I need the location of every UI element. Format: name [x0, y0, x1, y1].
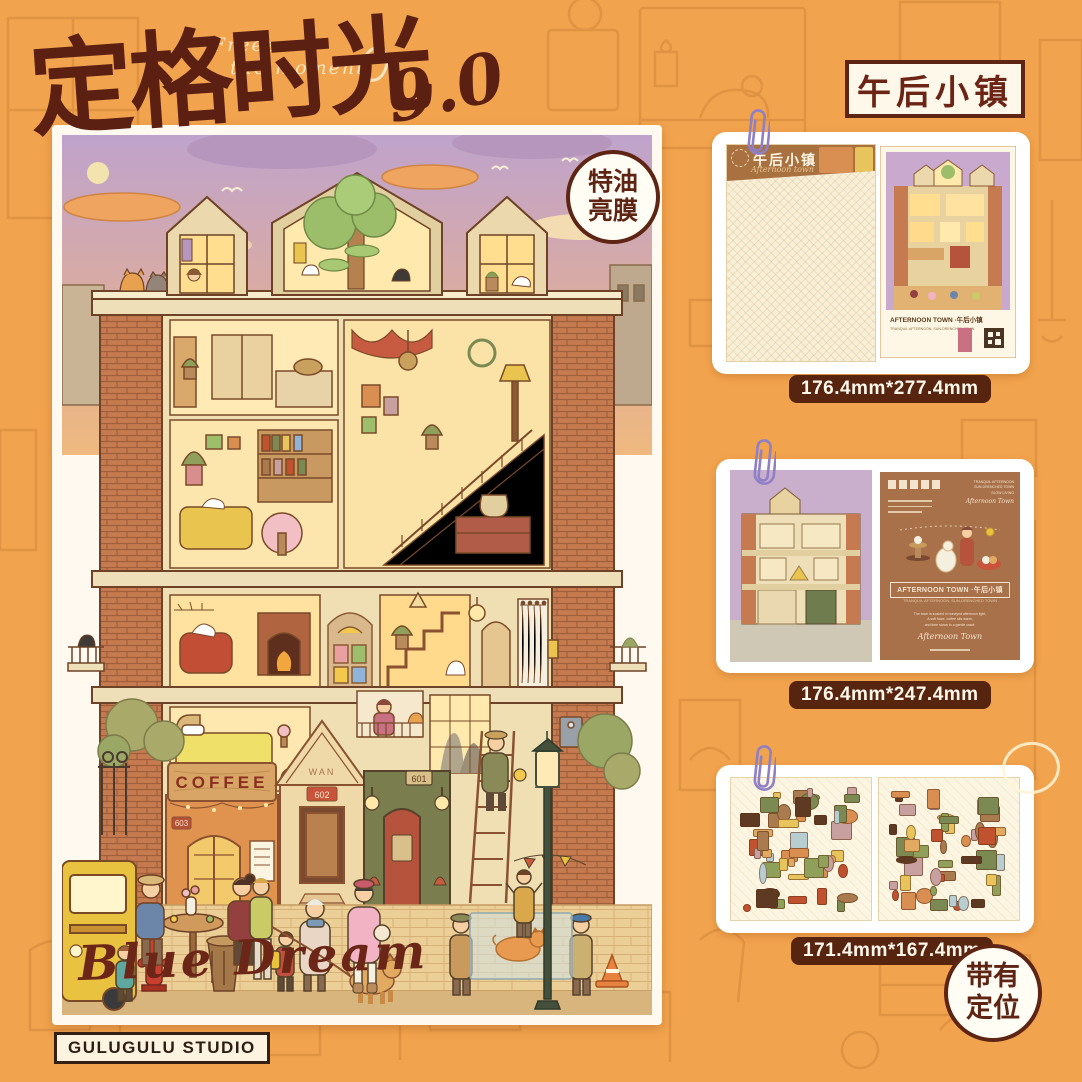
backing-sheet-script: Afternoon town	[751, 165, 814, 174]
main-poster: COFFEE 603 WAN 602	[52, 125, 662, 1025]
sticker-piece	[789, 848, 809, 859]
size-label-1: 176.4mm*277.4mm	[789, 375, 991, 403]
floor-living-room	[170, 595, 320, 687]
film-finish-badge: 特油 亮膜	[566, 150, 660, 244]
sticker-piece	[927, 789, 940, 809]
moon	[87, 162, 109, 184]
sticker-piece	[958, 896, 970, 911]
sticker-piece	[795, 797, 811, 817]
sticker-piece	[760, 797, 779, 813]
poster-illustration: COFFEE 603 WAN 602	[62, 135, 652, 1015]
sticker-sheet-left	[730, 777, 872, 921]
coffee-sign-text: COFFEE	[176, 773, 269, 792]
header-art	[855, 147, 873, 173]
sticker-piece	[838, 864, 847, 877]
sticker-piece	[938, 860, 953, 868]
sticker-piece	[930, 868, 942, 886]
sticky-backing-sheet: 午后小镇 Afternoon town	[726, 144, 876, 362]
sticker-piece	[837, 893, 857, 903]
sticker-piece	[961, 835, 970, 847]
product-card-backing-poster: 午后小镇 Afternoon town AFTERNOON TOWN ·午后小镇…	[712, 132, 1030, 374]
corner-text: TRANQUIL AFTERNOON SUN-DRENCHED TOWN SLO…	[966, 480, 1014, 506]
sticker-piece	[996, 854, 1005, 871]
sticker-piece	[814, 815, 826, 825]
stamp-squares	[888, 480, 940, 489]
sticker-piece	[759, 863, 767, 883]
film-badge-line2: 亮膜	[588, 197, 638, 227]
sticker-piece	[986, 874, 997, 886]
back-page-illustration	[894, 520, 1006, 576]
sticker-piece	[788, 858, 795, 868]
floor-attic-room	[170, 320, 338, 415]
floor-slab-1	[92, 571, 622, 587]
positioning-badge-line1: 带有	[966, 961, 1020, 993]
sticker-piece	[743, 904, 751, 912]
product-promo-image: COFFEE 603 WAN 602	[0, 0, 1082, 1082]
size-label-2: 176.4mm*247.4mm	[789, 681, 991, 709]
plate-601: 601	[411, 774, 426, 784]
back-logo-mark	[930, 649, 970, 651]
floor-stair-hall	[344, 320, 550, 568]
address-lines	[888, 496, 932, 517]
sticker-piece	[904, 839, 920, 851]
sticker-piece	[961, 856, 982, 864]
stained-glass-window	[328, 613, 372, 687]
base-house-thumb	[730, 470, 872, 662]
sticker-piece	[831, 821, 852, 840]
sticker-piece	[930, 886, 936, 897]
sticker-piece	[757, 831, 769, 851]
header-art	[819, 147, 853, 173]
sticker-piece	[978, 827, 996, 845]
floor-library	[170, 420, 338, 568]
sticker-piece	[978, 797, 999, 816]
iron-fence	[98, 752, 130, 835]
sticker-piece	[889, 824, 896, 835]
sticker-piece	[949, 895, 956, 906]
sticker-piece	[899, 804, 916, 817]
back-title-box: AFTERNOON TOWN ·午后小镇	[890, 582, 1010, 598]
sticker-piece	[844, 794, 860, 803]
sticker-piece	[756, 889, 778, 908]
back-script-signature: Afternoon Town	[880, 632, 1020, 641]
sticker-piece	[834, 810, 841, 824]
sticker-piece	[779, 858, 788, 871]
mini-poster-title: AFTERNOON TOWN ·午后小镇	[890, 315, 983, 324]
sticker-piece	[889, 881, 899, 890]
positioning-badge: 带有 定位	[944, 944, 1042, 1042]
sticker-piece	[740, 813, 760, 826]
sticker-piece	[891, 791, 910, 798]
product-card-base-page: TRANQUIL AFTERNOON SUN-DRENCHED TOWN SLO…	[716, 459, 1034, 673]
sticker-piece	[971, 899, 986, 908]
sticker-piece	[930, 899, 948, 910]
sticker-piece	[817, 888, 827, 906]
gable-text: WAN	[309, 767, 336, 777]
back-subtitle: TRANQUIL AFTERNOON, SUN-DRENCHED TOWN	[880, 598, 1020, 603]
sticker-piece	[901, 892, 916, 910]
floor-stairwell	[380, 593, 470, 687]
main-title: 定格时光	[26, 12, 432, 144]
sticker-piece	[900, 875, 911, 891]
mini-poster-thumb: AFTERNOON TOWN ·午后小镇 TRANQUIL AFTERNOON,…	[880, 146, 1016, 358]
paperclip-icon	[746, 106, 770, 160]
sticker-piece	[790, 832, 809, 849]
paperclip-icon	[752, 742, 776, 796]
back-body: The town is soaked in honeyed afternoon …	[880, 612, 1020, 628]
sticker-sheet-right	[878, 777, 1020, 921]
film-badge-line1: 特油	[588, 168, 638, 198]
sticker-piece	[940, 840, 948, 854]
series-title-badge: 午后小镇	[845, 60, 1025, 118]
sticker-piece	[818, 855, 829, 869]
balcony-plant-right	[610, 638, 646, 671]
positioning-badge-line2: 定位	[966, 993, 1020, 1025]
plate-602: 602	[314, 790, 329, 800]
sticker-piece	[939, 816, 960, 824]
paperclip-icon	[752, 436, 776, 490]
base-back-page: TRANQUIL AFTERNOON SUN-DRENCHED TOWN SLO…	[880, 472, 1020, 660]
sticker-piece	[892, 890, 898, 902]
sticker-piece	[906, 825, 916, 841]
green-house-601: 601	[364, 771, 450, 913]
plate-603: 603	[175, 819, 189, 828]
studio-name-box: GULUGULU STUDIO	[54, 1032, 270, 1064]
balcony-cat-left	[68, 635, 104, 671]
road	[62, 991, 652, 1015]
sticker-piece	[778, 819, 799, 828]
sticker-piece	[788, 896, 806, 904]
balcony-figure	[357, 691, 423, 737]
